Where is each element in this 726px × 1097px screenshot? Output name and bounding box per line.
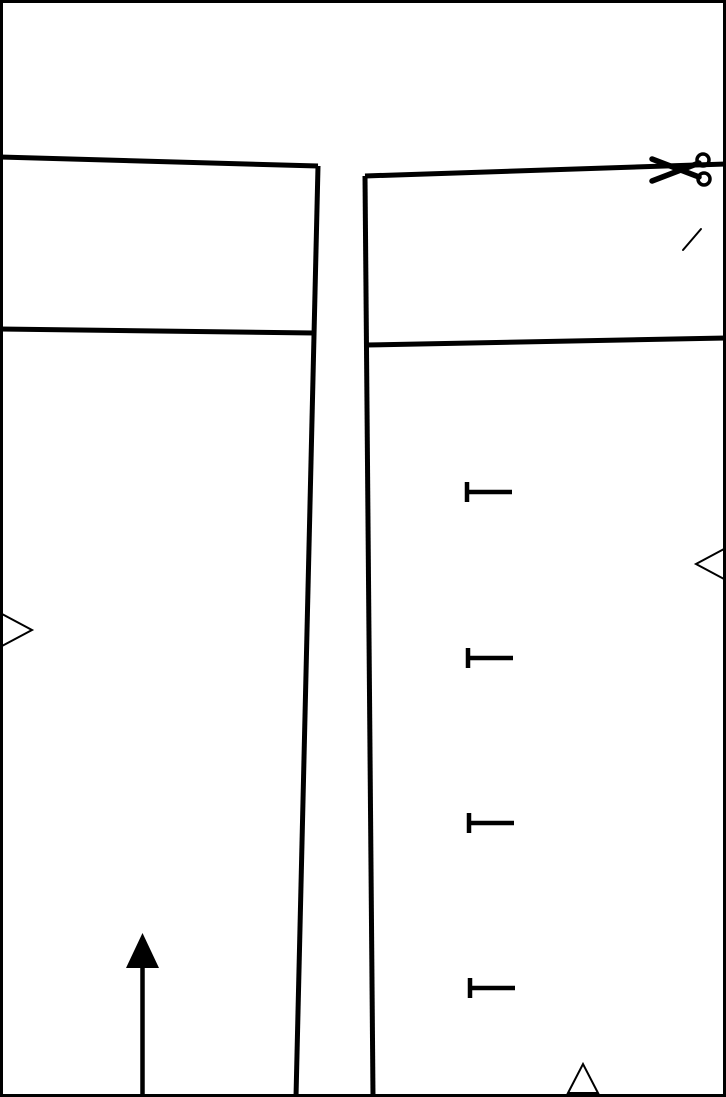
pin-mark-icon: [469, 813, 514, 833]
left-pattern-piece: [0, 157, 318, 1097]
right-piece-side-edge: [365, 176, 373, 1097]
match-triangle-left-edge-icon: [2, 614, 32, 646]
grainline-arrow-icon: [126, 933, 159, 1097]
right-piece-seam-line: [366, 338, 726, 345]
scissors-icon: [652, 154, 710, 185]
left-piece-side-edge: [296, 166, 318, 1097]
match-triangle-bottom-edge-icon: [568, 1064, 598, 1093]
pattern-drawing: [0, 0, 726, 1097]
right-pattern-piece: [365, 164, 726, 1097]
match-triangle-right-edge-icon: [696, 549, 724, 579]
pattern-tile-page: [0, 0, 726, 1097]
grainline-arrow-head: [126, 933, 159, 968]
pin-mark-icon: [467, 482, 512, 502]
pin-mark-icon: [468, 648, 513, 668]
pin-marks: [467, 482, 515, 998]
notch-slash-mark: [683, 229, 701, 250]
left-piece-top-edge: [0, 157, 318, 166]
pin-mark-icon: [470, 978, 515, 998]
left-piece-seam-line: [0, 329, 314, 333]
